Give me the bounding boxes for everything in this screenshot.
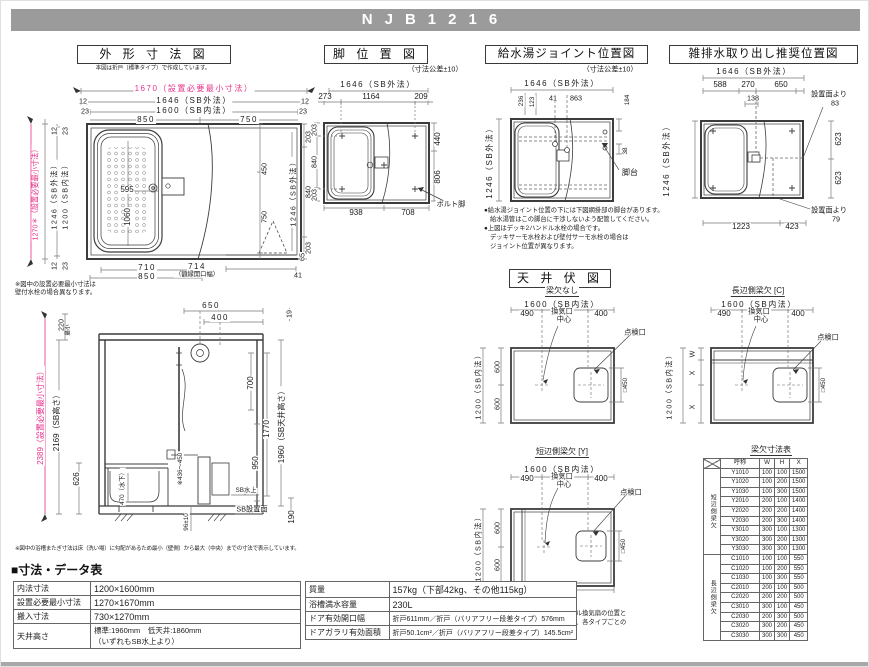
dim-220-caption: 最小 (66, 323, 72, 336)
dim-23-top-v: 23 (61, 126, 68, 136)
ceiling-b-name: 長辺側梁欠 [C] (731, 287, 785, 297)
dim-sb-inner-height: 1200（SB内法） (61, 159, 68, 230)
dim-drain-sb-outer-h: 1246（SB外法） (663, 120, 671, 197)
ceiling-b-linework (711, 326, 821, 423)
dim-23-bottom-v: 23 (61, 261, 68, 271)
dim-806: 806 (434, 169, 442, 184)
dim-tub-length: 1060 (124, 207, 132, 227)
beam-cell: 100 (760, 574, 775, 584)
beam-cell: C3020 (721, 622, 760, 632)
beam-cell: 100 (775, 468, 790, 478)
beam-cell: 200 (760, 593, 775, 603)
beam-cell: 1500 (790, 478, 808, 488)
ceiling-c-name: 短辺側梁欠 [Y] (535, 448, 589, 458)
joint-note-2: 給水湯管はこの脚台に干渉しないよう配管してください。 (490, 217, 653, 223)
beam-cell: 1300 (790, 526, 808, 536)
dim-joint-sb-outer-h: 1246（SB外法） (486, 122, 494, 199)
beam-cell: 100 (760, 478, 775, 488)
spec-value: 730×1270mm (91, 610, 301, 624)
beam-cell: 300 (760, 602, 775, 612)
beam-cell: 1500 (790, 468, 808, 478)
ceiling-c-490: 490 (519, 475, 534, 483)
ceiling-b-sq450: □450 (821, 377, 827, 393)
spec-label: 天井高さ (14, 624, 91, 649)
beam-cell: 450 (790, 602, 808, 612)
beam-cell: 1400 (790, 506, 808, 516)
beam-cell: Y3010 (721, 526, 760, 536)
ceiling-b-vent2: 中心 (753, 315, 769, 322)
dim-700: 700 (247, 375, 255, 390)
bottom-edge-bar (1, 662, 869, 667)
dim-leg-sb-outer-w: 1646（SB外法） (339, 81, 416, 89)
beam-cell: 500 (790, 593, 808, 603)
beam-cell: Y3030 (721, 545, 760, 555)
beam-cell: 300 (760, 545, 775, 555)
spec-label: 内法寸法 (14, 582, 91, 596)
beam-cell: 300 (775, 545, 790, 555)
spec-label: 設置必要最小寸法 (14, 596, 91, 610)
ceiling-c-400: 400 (593, 475, 608, 483)
leg-diagram-linework (324, 123, 446, 203)
dim-12-right: 12 (300, 97, 310, 104)
dim-38: 38 (623, 146, 629, 155)
spec-row: 搬入寸法730×1270mm (14, 610, 301, 624)
ceiling-a-600a: 600 (493, 360, 500, 374)
dim-23-left: 23 (80, 107, 90, 114)
beam-cell: Y2020 (721, 506, 760, 516)
joint-note-4: デッキサーモ水栓および壁付サーモ水栓の場合は (490, 235, 629, 241)
dim-710: 710 (137, 264, 157, 272)
beam-cell: 450 (790, 622, 808, 632)
beam-cell: 100 (760, 468, 775, 478)
spec-sheet: NJB1216 (0, 0, 869, 667)
tolerance-note-legs: （寸法公差±10） (406, 65, 463, 72)
beam-cell: Y2030 (721, 516, 760, 526)
beam-cell: 100 (775, 602, 790, 612)
beam-cell: 200 (760, 583, 775, 593)
beam-cell: 300 (760, 622, 775, 632)
dim-190: 190 (288, 509, 296, 524)
dim-400-side: 400 (210, 314, 230, 322)
dim-863: 863 (569, 94, 583, 101)
beam-table-header-row: 呼称WHX (704, 459, 808, 469)
spec-label: 浴槽満水容量 (306, 598, 390, 612)
beam-cell: Y2010 (721, 497, 760, 507)
dim-938: 938 (348, 209, 363, 217)
ceiling-b-490: 490 (716, 310, 731, 318)
spec-row: 質量157kg（下部42kg、その他115kg） (306, 582, 577, 598)
beam-cell: 300 (775, 487, 790, 497)
dim-623-b: 623 (835, 170, 843, 185)
dim-sb-outer-height-right: 1246（SB外法） (289, 156, 296, 227)
spec-row: ドアガラリ有効面積折戸50.1cm²／折戸（バリアフリー段差タイプ）145.5c… (306, 626, 577, 640)
dim-440: 440 (434, 131, 442, 146)
beam-cell: 300 (760, 535, 775, 545)
dim-850-bottom: 850 (137, 273, 157, 281)
datasheet-heading: ■寸法・データ表 (11, 561, 102, 578)
side-note: ※図中の浴槽またぎ寸法は床（洗い場）に勾配があるため最小（壁側）から最大（中央）… (15, 547, 300, 553)
dim-79: 79 (831, 215, 841, 222)
dim-tub-width: 595 (119, 186, 134, 194)
beam-cell: 200 (775, 506, 790, 516)
dim-41-joint: 41 (548, 94, 558, 101)
dim-leg-840: 840 (310, 155, 317, 169)
ceiling-a-vent2: 中心 (556, 315, 572, 322)
beam-table-row: 短辺側梁欠Y10101001001500 (704, 468, 808, 478)
dim-1223: 1223 (731, 223, 751, 231)
beam-cell: Y1020 (721, 478, 760, 488)
beam-cell: 500 (790, 583, 808, 593)
dim-203-b: 203 (304, 241, 311, 255)
beam-cell: 100 (760, 554, 775, 564)
beam-cell: 100 (760, 564, 775, 574)
beam-table-title: 梁欠寸法表 (750, 446, 792, 456)
dim-drain-sb-outer-w: 1646（SB外法） (715, 68, 792, 76)
tolerance-note-joint: （寸法公差±10） (581, 65, 638, 72)
dim-270: 270 (740, 81, 755, 89)
beam-cell: 450 (790, 631, 808, 641)
beam-cell: 200 (775, 535, 790, 545)
spec-label: 質量 (306, 582, 390, 598)
label-sb-water-top: SB水上 (235, 488, 258, 494)
side-dim-lines (56, 308, 294, 531)
dim-leg-203a: 203 (310, 123, 317, 137)
dim-96: 96±10 (184, 512, 190, 531)
beam-cell: 1400 (790, 516, 808, 526)
label-leg-base: 脚台 (621, 169, 639, 177)
spec-label: ドアガラリ有効面積 (306, 626, 390, 640)
dim-138: 138 (746, 94, 760, 101)
title-external-dimensions: 外 形 寸 法 図 (77, 45, 231, 64)
dim-750-top: 750 (239, 116, 259, 124)
beam-cell: C3030 (721, 631, 760, 641)
ceiling-b-x1: X (688, 370, 695, 377)
spec-label: 搬入寸法 (14, 610, 91, 624)
dim-sb-outer-height: 1246（SB外法） (50, 159, 57, 230)
dim-min-install-height: 1270＊（設置必要最小寸法） (31, 144, 38, 241)
label-from-face-b: 設置面より (810, 206, 848, 213)
beam-cell: 100 (775, 497, 790, 507)
dim-714-caption: （額縁開口幅） (174, 272, 220, 278)
drain-diagram-linework (701, 107, 825, 214)
plan-note-line2: 壁付水栓の場合異なります。 (15, 290, 96, 296)
ceiling-b-x2: X (688, 404, 695, 411)
beam-cell: 200 (775, 564, 790, 574)
ceiling-a-linework (511, 326, 630, 423)
dim-850-top: 850 (136, 116, 156, 124)
beam-cell: C1010 (721, 554, 760, 564)
ceiling-c-600b: 600 (493, 558, 500, 572)
dim-min-install-total-height: 2389（設置必要最小寸法） (37, 366, 45, 466)
beam-cell: 300 (775, 631, 790, 641)
beam-cell: 1400 (790, 497, 808, 507)
dim-209: 209 (413, 93, 428, 101)
beam-cell: Y3020 (721, 535, 760, 545)
beam-group-label: 短辺側梁欠 (704, 468, 721, 554)
dim-626: 626 (73, 471, 81, 486)
dim-23-right: 23 (298, 107, 308, 114)
dim-41: 41 (293, 271, 303, 278)
dim-tub-rim-range: ※436〜450 (178, 452, 184, 487)
beam-cell: C2020 (721, 593, 760, 603)
model-number-bar: NJB1216 (11, 9, 860, 31)
dim-623-a: 623 (835, 131, 843, 146)
dim-588: 588 (712, 81, 727, 89)
ceiling-a-name: 梁欠なし (545, 287, 579, 297)
ceiling-a-490: 490 (519, 310, 534, 318)
beam-cell: 200 (760, 612, 775, 622)
spec-row: 設置必要最小寸法1270×1670mm (14, 596, 301, 610)
dim-750-inner: 750 (260, 210, 267, 224)
beam-cell: 200 (760, 516, 775, 526)
spec-table-right: 質量157kg（下部42kg、その他115kg）浴槽満水容量230Lドア有効開口… (305, 581, 577, 640)
beam-group-label: 長辺側梁欠 (704, 554, 721, 640)
label-sb-install-face: SB設置面 (235, 505, 268, 512)
dim-19: 19 (285, 309, 292, 319)
beam-cell: C2030 (721, 612, 760, 622)
title-leg-position: 脚 位 置 図 (324, 45, 428, 64)
joint-note-1: ●給水湯ジョイント位置の下には下図網掛部の脚台があります。 (484, 208, 664, 214)
spec-value: 折戸611mm／折戸（バリアフリー段差タイプ）576mm (389, 612, 576, 626)
label-bolt-leg: ボルト脚 (436, 200, 467, 207)
ceiling-c-vent2: 中心 (556, 480, 572, 487)
ceiling-a-sq450: □450 (623, 377, 629, 393)
dim-ceiling-height: 1960（SB天井高さ） (278, 386, 286, 464)
beam-cell: 300 (775, 516, 790, 526)
dim-714: 714 (187, 263, 207, 271)
beam-cell: C3010 (721, 602, 760, 612)
beam-cell: 200 (760, 497, 775, 507)
ceiling-b-access: 点検口 (816, 333, 840, 340)
beam-cell: 500 (790, 612, 808, 622)
beam-cell: 200 (775, 593, 790, 603)
beam-cell: Y1030 (721, 487, 760, 497)
beam-cell: 1300 (790, 545, 808, 555)
beam-cell: 300 (775, 574, 790, 584)
spec-value: 1270×1670mm (91, 596, 301, 610)
ceiling-a-access: 点検口 (623, 328, 647, 335)
subnote-door-type: 本図は折戸（標準タイプ）で作成しています。 (95, 66, 212, 72)
dim-min-install-width: 1670（設置必要最小寸法） (134, 85, 255, 93)
dim-tub-depth: 470（水下） (120, 468, 126, 506)
beam-table-header: W (760, 459, 775, 469)
dim-83: 83 (830, 99, 840, 106)
ceiling-a-sb-in-h: 1200（SB内法） (474, 349, 481, 420)
beam-cell: 200 (775, 622, 790, 632)
beam-cell: 100 (760, 487, 775, 497)
ceiling-c-sb-in-h: 1200（SB内法） (474, 511, 481, 582)
dim-650-side: 650 (201, 302, 221, 310)
beam-cell: 100 (775, 583, 790, 593)
dim-423: 423 (784, 223, 799, 231)
dim-sb-outer-width: 1646（SB外法） (155, 97, 232, 105)
beam-cell: 1300 (790, 535, 808, 545)
label-from-face-a: 設置面より (810, 90, 848, 97)
dim-236: 236 (519, 95, 525, 108)
spec-value-line2: （いずれもSB水上より） (94, 636, 297, 647)
spec-value: 折戸50.1cm²／折戸（バリアフリー段差タイプ）145.5cm² (389, 626, 576, 640)
dim-12-top-v: 12 (50, 126, 57, 136)
beam-table-row: 長辺側梁欠C1010100100550 (704, 554, 808, 564)
beam-cell: 550 (790, 574, 808, 584)
ceiling-c-600a: 600 (493, 521, 500, 535)
joint-legbase-dashed (519, 95, 607, 189)
spec-row: 内法寸法1200×1600mm (14, 582, 301, 596)
beam-cell: 550 (790, 564, 808, 574)
beam-cell: 200 (760, 506, 775, 516)
beam-cell: C2010 (721, 583, 760, 593)
beam-table-header: X (790, 459, 808, 469)
joint-note-5: ジョイント位置が異なります。 (490, 244, 578, 250)
beam-cell: Y1010 (721, 468, 760, 478)
spec-row: 天井高さ標準:1960mm 低天井:1860mm（いずれもSB水上より） (14, 624, 301, 649)
spec-value: 1200×1600mm (91, 582, 301, 596)
ceiling-b-sb-in-h: 1200（SB内法） (665, 349, 672, 420)
beam-cut-table: 呼称WHX短辺側梁欠Y10101001001500Y10201002001500… (703, 458, 808, 641)
beam-cell: 200 (775, 478, 790, 488)
dim-1770: 1770 (263, 419, 271, 439)
dim-sb-height: 2169（SB高さ） (53, 390, 61, 452)
dim-450-inner: 450 (260, 162, 267, 176)
spec-value: 157kg（下部42kg、その他115kg） (389, 582, 576, 598)
beam-table-header: H (775, 459, 790, 469)
beam-table-corner (704, 459, 721, 469)
beam-cell: 550 (790, 554, 808, 564)
title-water-joint: 給水湯ジョイント位置図 (485, 45, 648, 64)
beam-cell: 100 (775, 526, 790, 536)
dim-220: 220 (57, 318, 64, 332)
ceiling-c-sq450: □450 (621, 538, 627, 554)
beam-cell: 300 (760, 526, 775, 536)
spec-label: ドア有効開口幅 (306, 612, 390, 626)
beam-cell: 1500 (790, 487, 808, 497)
dim-joint-sb-outer-w: 1646（SB外法） (523, 80, 600, 88)
title-drain-position: 雑排水取り出し推奨位置図 (669, 45, 858, 64)
dim-950: 950 (252, 455, 260, 470)
spec-table-left: 内法寸法1200×1600mm設置必要最小寸法1270×1670mm搬入寸法73… (13, 581, 301, 649)
beam-cell: 100 (775, 554, 790, 564)
ceiling-a-400: 400 (593, 310, 608, 318)
ceiling-c-linework (511, 488, 626, 586)
spec-value: 230L (389, 598, 576, 612)
spec-row: 浴槽満水容量230L (306, 598, 577, 612)
dim-708: 708 (400, 209, 415, 217)
joint-note-3: ●上図はデッキ2ハンドル水栓の場合です。 (484, 226, 604, 232)
dim-650-drain: 650 (773, 81, 788, 89)
dim-sb-inner-width: 1600（SB内法） (155, 107, 232, 115)
dim-leg-203b: 203 (310, 188, 317, 202)
beam-cell: C1030 (721, 574, 760, 584)
spec-value: 標準:1960mm 低天井:1860mm（いずれもSB水上より） (91, 624, 301, 649)
spec-row: ドア有効開口幅折戸611mm／折戸（バリアフリー段差タイプ）576mm (306, 612, 577, 626)
dim-12-left: 12 (78, 97, 88, 104)
ceiling-b-400: 400 (790, 310, 805, 318)
beam-table-header: 呼称 (721, 459, 760, 469)
plan-note-line1: ※図中の設置必要最小寸法は (15, 282, 96, 288)
drain-dashed (756, 91, 803, 198)
ceiling-c-access: 点検口 (619, 488, 643, 495)
beam-cell: 300 (760, 631, 775, 641)
beam-cell: 300 (775, 612, 790, 622)
ceiling-b-w: W (688, 350, 695, 359)
dim-184: 184 (625, 94, 631, 107)
dim-1164: 1164 (361, 93, 380, 101)
dim-273: 273 (317, 93, 332, 101)
beam-cell: C1020 (721, 564, 760, 574)
dim-123: 123 (530, 96, 536, 109)
dim-12-bottom-v: 12 (50, 261, 57, 271)
ceiling-a-600b: 600 (493, 397, 500, 411)
